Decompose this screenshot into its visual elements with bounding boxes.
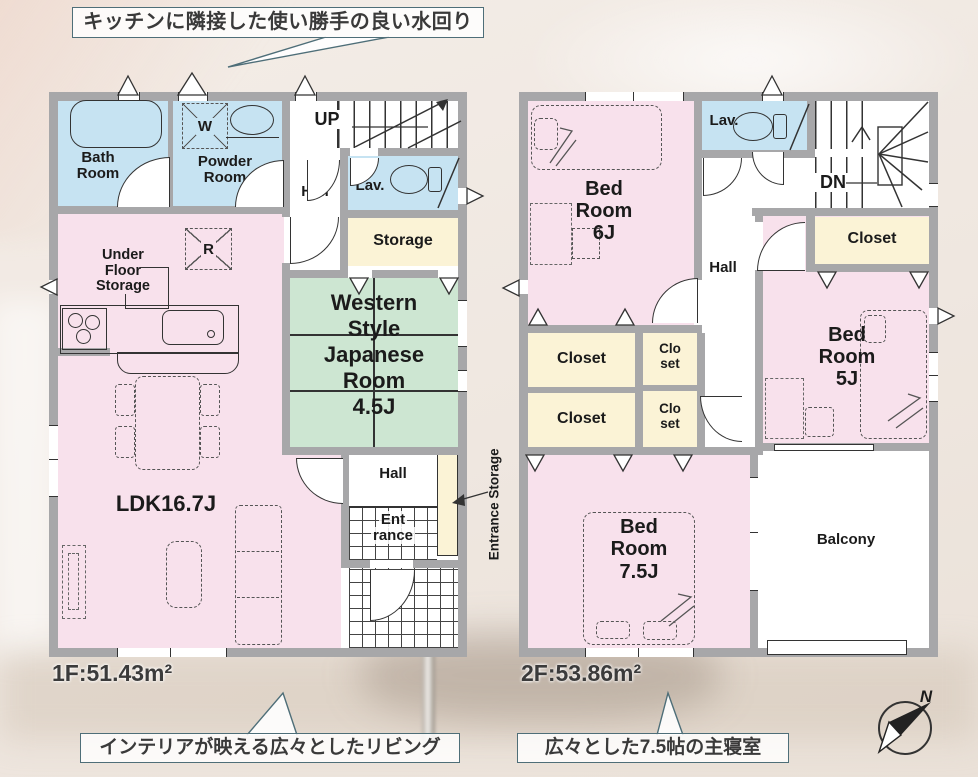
lav-slope-2f: [790, 104, 809, 150]
stairs-fan-line: [879, 154, 902, 207]
callout-bottom-left: インテリアが映える広々としたリビング: [80, 733, 460, 763]
bed-fold: [550, 128, 572, 163]
bed-fold: [556, 140, 576, 166]
opening-triangle: [614, 455, 632, 471]
vent-triangle: [295, 76, 315, 95]
bed-fold: [888, 394, 920, 421]
lav-slope-1f: [438, 158, 459, 208]
vent-triangle: [118, 76, 138, 95]
entrance-storage-arrowhead: [452, 494, 465, 506]
vent-triangle: [178, 73, 206, 95]
vent-triangle: [762, 76, 782, 95]
bed-fold: [669, 606, 694, 626]
vent-triangle: [467, 188, 483, 204]
opening-triangle: [616, 309, 634, 325]
entrance-storage-label: Entrance Storage: [488, 433, 503, 575]
vent-triangle: [938, 308, 954, 324]
opening-triangle: [818, 272, 836, 288]
stairs-up-line: [355, 101, 445, 147]
compass-north-label: N: [912, 688, 940, 706]
opening-triangle: [350, 278, 368, 294]
stairs-fan-line: [879, 102, 928, 154]
floor2-area-label: 2F:53.86m²: [521, 660, 641, 687]
vent-triangle: [503, 280, 519, 296]
bed-fold: [896, 408, 923, 428]
opening-triangle: [674, 455, 692, 471]
vent-triangle: [41, 279, 57, 295]
callout-bottom-right: 広々とした7.5帖の主寝室: [517, 733, 789, 763]
opening-triangle: [910, 272, 928, 288]
callout-top: キッチンに隣接した使い勝手の良い水回り: [72, 7, 484, 38]
stairs-fan-line: [879, 132, 928, 154]
floor1-area-label: 1F:51.43m²: [52, 660, 172, 687]
bed-fold: [661, 594, 691, 621]
callout-pointer-top-stroke: [228, 37, 389, 67]
opening-triangle: [526, 455, 544, 471]
opening-triangle: [440, 278, 458, 294]
stairs-up-line2: [408, 121, 461, 148]
stairs-dn-arrow: [852, 127, 870, 142]
opening-triangle: [529, 309, 547, 325]
